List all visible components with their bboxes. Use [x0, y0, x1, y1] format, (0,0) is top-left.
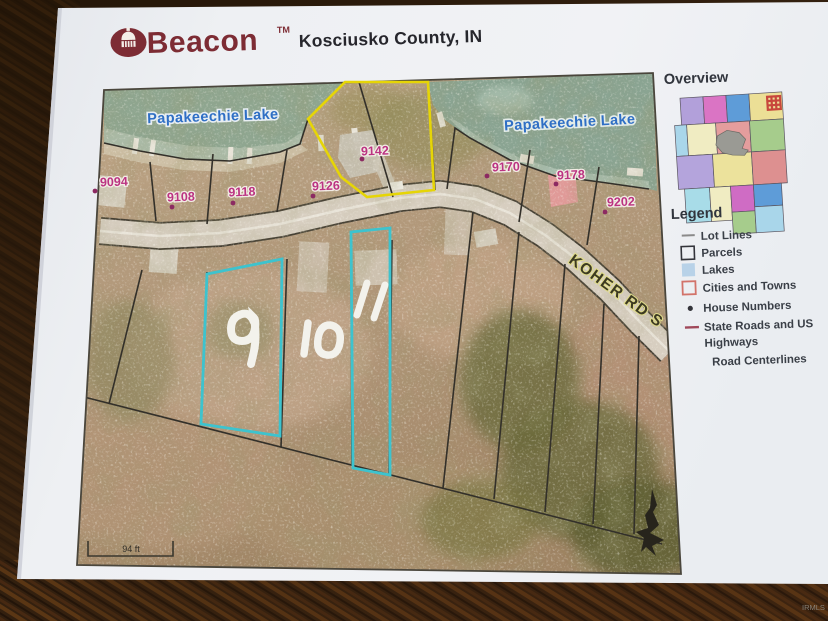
- svg-text:9118: 9118: [228, 185, 256, 200]
- svg-text:9126: 9126: [312, 179, 340, 194]
- svg-text:Beacon: Beacon: [146, 24, 258, 60]
- svg-text:Parcels: Parcels: [701, 246, 742, 259]
- svg-text:Legend: Legend: [671, 205, 723, 223]
- svg-text:IRMLS: IRMLS: [802, 603, 825, 612]
- svg-text:Highways: Highways: [704, 336, 758, 350]
- svg-text:9178: 9178: [557, 168, 585, 183]
- svg-text:94 ft: 94 ft: [122, 544, 140, 554]
- svg-text:Lot Lines: Lot Lines: [701, 229, 753, 243]
- svg-text:TM: TM: [277, 25, 290, 35]
- svg-text:Lakes: Lakes: [702, 264, 735, 277]
- svg-text:9094: 9094: [100, 175, 128, 190]
- svg-text:9142: 9142: [361, 144, 389, 159]
- svg-text:Overview: Overview: [664, 70, 730, 88]
- svg-text:9202: 9202: [607, 195, 635, 210]
- svg-text:9170: 9170: [492, 160, 520, 175]
- svg-text:9108: 9108: [167, 190, 195, 205]
